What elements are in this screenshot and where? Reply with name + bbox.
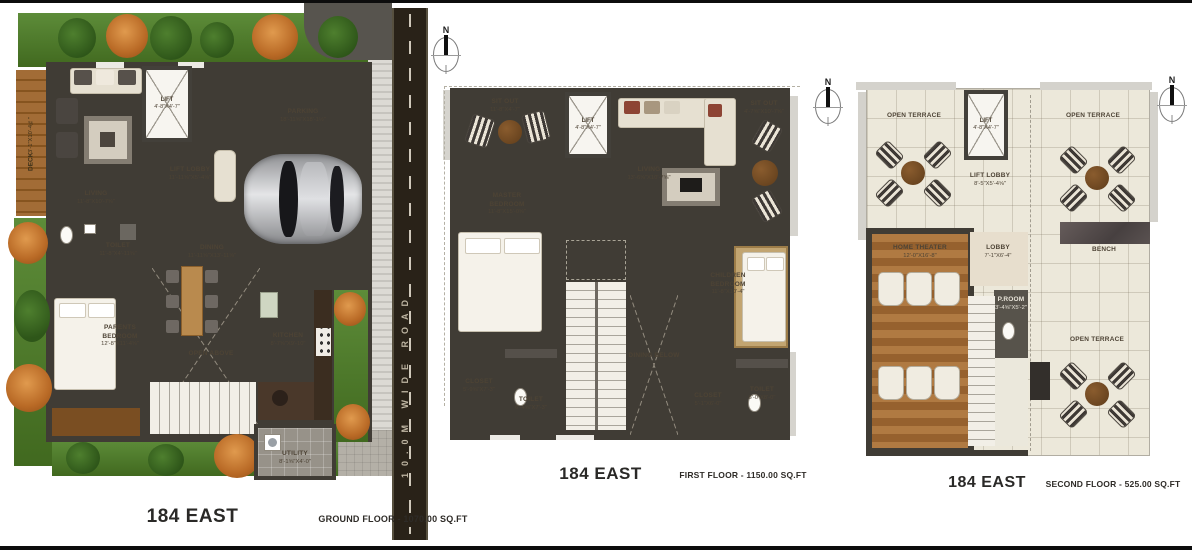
- sofa-cushion: [118, 70, 136, 85]
- terrace-table-set: [1062, 142, 1132, 212]
- terrace-chair: [1058, 145, 1088, 175]
- toilet-wc: [1002, 322, 1015, 340]
- label-children-bedroom: CHILDREN BEDROOM 11'-8"X10'-4": [698, 272, 758, 297]
- sofa-cushion: [644, 101, 660, 114]
- property-dashed-line: [444, 86, 800, 87]
- dining-chair: [205, 295, 218, 308]
- compass-needle: [444, 35, 448, 56]
- ledge: [858, 92, 866, 240]
- label-living: LIVING 13'-6⅝"X10'-7⅝": [610, 166, 688, 182]
- toilet-vanity: [736, 359, 788, 368]
- label-deck: DECK 3'-1"X10'-4⅝": [17, 84, 45, 204]
- label-closet-right: CLOSET 5'-1"X6'-0": [684, 392, 732, 408]
- orange-tree: [6, 364, 52, 412]
- label-lift-lobby: LIFT LOBBY 11'-11⅝"X5'-4⅝": [158, 166, 222, 182]
- stair-dashed-zone: [566, 240, 626, 280]
- orange-tree: [8, 222, 48, 264]
- bed: [742, 252, 786, 342]
- terrace-table-set: [878, 137, 948, 207]
- terrace-chair: [874, 140, 904, 170]
- dining-set: [166, 258, 218, 346]
- terrace-table: [901, 161, 925, 185]
- orange-tree: [106, 14, 148, 58]
- compass-dial: [815, 89, 841, 124]
- dining-table: [181, 266, 203, 336]
- first-floor-area-label: FIRST FLOOR - 1150.00 SQ.FT: [668, 470, 818, 480]
- top-border-line: [0, 0, 1192, 3]
- terrace-table: [1085, 382, 1109, 406]
- theater-seat: [906, 272, 932, 306]
- refrigerator: [260, 292, 278, 318]
- label-utility: UTILITY 8'-1⅝"X4'-0": [266, 450, 324, 466]
- dining-chair: [205, 320, 218, 333]
- terrace-chair: [1058, 361, 1088, 391]
- label-dining-below: DINING BELOW: [628, 352, 680, 361]
- car-rear-glass: [330, 166, 344, 233]
- second-plan-title: 184 EAST: [928, 474, 1046, 492]
- wall-segment: [46, 212, 146, 218]
- compass-tail: [446, 65, 447, 74]
- compass-needle: [1170, 85, 1174, 106]
- green-bush: [58, 18, 96, 58]
- orange-tree: [252, 14, 298, 60]
- green-bush: [148, 444, 184, 476]
- compass-tail: [1172, 115, 1173, 124]
- compass-north-indicator: N: [1158, 76, 1186, 122]
- car-top-view: [244, 154, 362, 244]
- green-bush: [14, 290, 50, 342]
- wall-segment: [866, 450, 1028, 456]
- wardrobe: [52, 408, 140, 436]
- pillow: [88, 303, 115, 318]
- label-open-terrace-right: OPEN TERRACE: [1050, 112, 1136, 121]
- label-parents-bedroom: PARENTS BEDROOM 12'-8"X11'-4⅝": [94, 324, 146, 349]
- utility-unit: [1030, 362, 1050, 400]
- staircase: [968, 296, 995, 446]
- label-closet-left: CLOSET 5'-9⅝"X7'-3": [455, 378, 503, 394]
- compass-dial: [433, 37, 459, 72]
- armchair: [56, 132, 78, 158]
- ledge: [856, 82, 956, 90]
- terrace-table-set: [1062, 358, 1132, 428]
- label-lift-lobby: LIFT LOBBY 8'-5"X5'-4⅝": [960, 172, 1020, 188]
- lift-shaft: LIFT 4'-8"X4'-7": [565, 92, 611, 158]
- ledge: [1150, 92, 1158, 222]
- sofa-cushion: [96, 70, 114, 85]
- lift-shaft: LIFT 4'-8"X4'-7": [142, 66, 192, 142]
- label-living: LIVING 11'-8"X10'-7⅝": [58, 190, 134, 206]
- staircase: [150, 382, 256, 434]
- orange-tree: [336, 404, 370, 440]
- bed: [458, 232, 542, 332]
- label-sit-out-left: SIT OUT 11'-8"X4'-7": [472, 98, 538, 114]
- label-kitchen: KITCHEN 8'-7⅝"X9'-10": [262, 332, 314, 348]
- stair-landing: [995, 358, 1028, 446]
- pillow: [504, 238, 540, 254]
- theater-seat: [878, 272, 904, 306]
- label-open-above: OPEN ABOVE: [176, 350, 246, 359]
- toilet-wc: [60, 226, 73, 244]
- green-bush: [66, 442, 100, 474]
- property-dashed-line: [444, 86, 445, 406]
- green-bush: [200, 22, 234, 58]
- wall-segment: [450, 342, 562, 347]
- label-lift: LIFT 4'-8"X4'-7": [146, 70, 188, 138]
- window: [490, 435, 520, 440]
- second-floor-area-label: SECOND FLOOR - 525.00 SQ.FT: [1038, 479, 1188, 489]
- theater-seat: [906, 366, 932, 400]
- terrace-chair: [1058, 399, 1088, 429]
- green-bush: [150, 16, 192, 60]
- washing-machine-drum: [268, 438, 277, 447]
- label-lift: LIFT 4'-8"X4'-7": [569, 96, 607, 154]
- dining-chair: [205, 270, 218, 283]
- pillow: [747, 257, 765, 271]
- label-dining: DINING 11'-11⅝"X13'-11⅝": [180, 244, 244, 260]
- compass-needle: [826, 87, 830, 108]
- sofa-cushion: [74, 70, 92, 85]
- theater-seat: [878, 366, 904, 400]
- home-theater-floor: [872, 234, 968, 448]
- kitchen-sink: [272, 390, 288, 406]
- label-bench: BENCH: [1076, 246, 1132, 255]
- compass-tail: [828, 117, 829, 126]
- first-plan-title: 184 EAST: [538, 464, 663, 484]
- label-open-terrace-left: OPEN TERRACE: [876, 112, 952, 121]
- window: [556, 435, 594, 440]
- wall-segment: [674, 352, 790, 357]
- car-roof: [299, 162, 329, 236]
- orange-tree: [334, 292, 366, 326]
- toilet-sink: [84, 224, 96, 234]
- bottom-border-line: [0, 546, 1192, 550]
- terrace-chair: [1058, 183, 1088, 213]
- patio-table: [498, 120, 522, 144]
- label-parking: PARKING 18'-11⅝"X18'-1½": [268, 108, 338, 124]
- label-home-theater: HOME THEATER 12'-0"X16'-8": [876, 244, 964, 260]
- pillow: [59, 303, 86, 318]
- dining-chair: [166, 270, 179, 283]
- label-master-bedroom: MASTER BEDROOM 11'-8"X15'-0⅝": [476, 192, 538, 217]
- sofa-cushion: [624, 101, 640, 114]
- shower: [120, 224, 136, 240]
- car-windshield: [279, 161, 298, 237]
- coffee-table: [100, 132, 115, 147]
- stove: [316, 328, 331, 356]
- patio-table: [752, 160, 778, 186]
- ground-plan-title: 184 EAST: [125, 506, 260, 528]
- theater-seat: [934, 272, 960, 306]
- sofa-cushion: [664, 101, 680, 114]
- compass-dial: [1159, 87, 1185, 122]
- ledge: [1040, 82, 1152, 90]
- label-sit-out-right: SIT OUT 4'-7⅝"X10'-7⅝": [740, 100, 788, 116]
- dining-below-void-cross: [630, 295, 678, 435]
- wall-segment: [450, 155, 562, 161]
- label-p-room: P.ROOM 3'-4⅝"X5'-2": [988, 296, 1034, 312]
- wall-segment: [46, 280, 146, 285]
- wall-segment: [230, 250, 366, 255]
- dining-chair: [166, 295, 179, 308]
- pillow: [465, 238, 501, 254]
- toilet-vanity: [505, 349, 557, 358]
- wall-segment: [674, 232, 790, 237]
- label-lift: LIFT 4'-8"X4'-7": [968, 94, 1004, 156]
- ground-floor-area-label: GROUND FLOOR - 1070.00 SQ.FT: [318, 514, 468, 524]
- floor-plan-sheet: DECK 3'-1"X10'-4⅝" PARKING 18'-11⅝"X18'-…: [0, 0, 1192, 550]
- green-bush: [318, 16, 358, 58]
- label-toilet: TOILET 11'-8"X4'-11⅝": [92, 242, 144, 258]
- theater-seat: [934, 366, 960, 400]
- road-label: 10.0M WIDE ROAD: [400, 240, 418, 530]
- label-toilet-right: TOILET 6'-0"X8'-0": [736, 386, 788, 402]
- sofa-cushion: [708, 104, 722, 117]
- label-lobby: LOBBY 7'-1"X6'-4": [968, 244, 1028, 260]
- label-open-terrace-bottom: OPEN TERRACE: [1056, 336, 1138, 345]
- bench: [1060, 222, 1150, 244]
- compass-north-indicator: N: [814, 78, 842, 124]
- compass-north-indicator: N: [432, 26, 460, 72]
- label-toilet-left: TOILET 6'-4⅝"X7'-3": [505, 396, 557, 412]
- lift-shaft: LIFT 4'-8"X4'-7": [964, 90, 1008, 160]
- terrace-table: [1085, 166, 1109, 190]
- armchair: [56, 98, 78, 124]
- dining-chair: [166, 320, 179, 333]
- pillow: [766, 257, 784, 271]
- terrace-chair: [874, 178, 904, 208]
- stair-rail: [595, 282, 598, 430]
